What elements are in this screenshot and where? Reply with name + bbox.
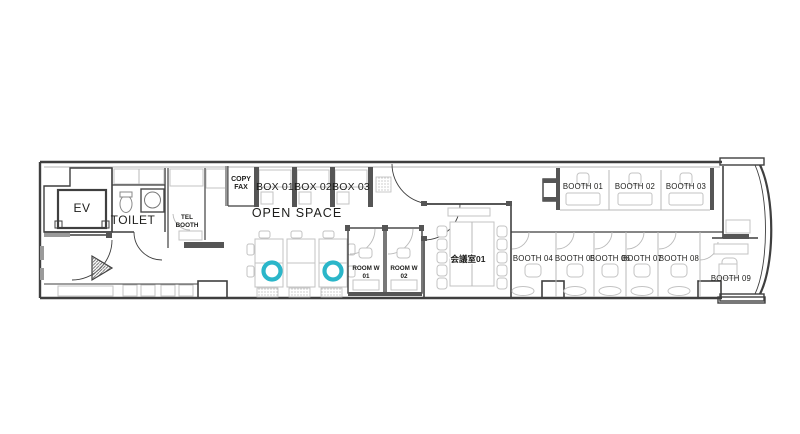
box-rooms: BOX 01 BOX 02 BOX 03: [254, 167, 391, 207]
booths-top: BOOTH 01 BOOTH 02 BOOTH 03: [556, 168, 714, 210]
open-space-counter: [123, 285, 193, 296]
plant-icon: [376, 177, 391, 192]
booth02: BOOTH 02: [615, 173, 655, 205]
booth08: BOOTH 08: [659, 254, 699, 296]
right-room: [712, 166, 758, 239]
room-tel-booth: TEL BOOTH: [168, 168, 227, 248]
booth09-label: BOOTH 09: [711, 274, 751, 283]
room-tel-booth-label-line1: TEL: [181, 214, 193, 221]
booth04: BOOTH 04: [512, 254, 554, 296]
booth03: BOOTH 03: [666, 173, 706, 205]
room-toilet: TOILET: [44, 168, 165, 260]
room-w01-label-line1: ROOM W: [352, 265, 379, 272]
room-box02-label: BOX 02: [294, 181, 332, 193]
room-copy-fax: COPY FAX: [225, 166, 256, 206]
room-w02-label-line1: ROOM W: [390, 265, 417, 272]
room-box03-label: BOX 03: [332, 181, 370, 193]
room-ev-label: EV: [73, 201, 90, 215]
booth01-label: BOOTH 01: [563, 182, 603, 191]
booth09: BOOTH 09: [700, 242, 751, 283]
floor-plan-page: EV TOILET TEL BOOTH: [0, 0, 800, 434]
room-w01: ROOM W 01: [348, 228, 384, 293]
room-ev: EV: [44, 168, 112, 232]
room-tel-booth-label-line2: BOOTH: [176, 222, 199, 229]
booth04-label: BOOTH 04: [513, 254, 554, 263]
booth01: BOOTH 01: [563, 173, 603, 205]
room-w01-label-line2: 01: [362, 273, 370, 280]
booth07: BOOTH 07: [622, 254, 662, 296]
room-meeting01-label: 会議室01: [450, 254, 486, 264]
room-open-space: OPEN SPACE: [247, 206, 355, 297]
room-box01-label: BOX 01: [256, 181, 294, 193]
toilet-fixture-icon: [120, 192, 132, 213]
floor-plan-canvas: EV TOILET TEL BOOTH: [0, 0, 800, 434]
booth02-label: BOOTH 02: [615, 182, 655, 191]
room-open-space-label: OPEN SPACE: [252, 206, 342, 220]
room-w02-label-line2: 02: [400, 273, 408, 280]
booth08-label: BOOTH 08: [659, 254, 699, 263]
room-copy-fax-label-line2: FAX: [234, 184, 248, 191]
room-meeting01: 会議室01: [392, 164, 512, 297]
booth07-label: BOOTH 07: [622, 254, 662, 263]
room-copy-fax-label-line1: COPY: [231, 176, 251, 183]
entrance-arrow-icon: [92, 256, 112, 280]
sink-icon: [141, 189, 164, 212]
room-toilet-label: TOILET: [111, 213, 156, 227]
booth03-label: BOOTH 03: [666, 182, 706, 191]
